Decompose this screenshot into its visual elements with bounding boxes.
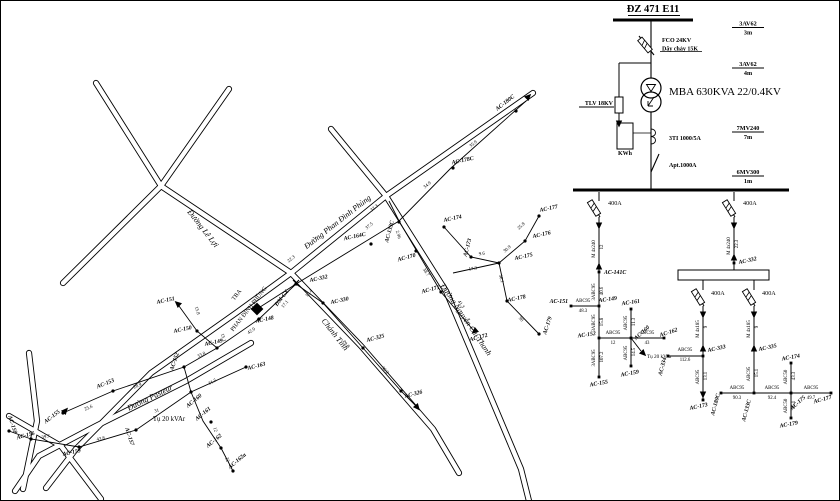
node-label: AC-334 — [658, 357, 669, 377]
pole-node — [451, 166, 454, 169]
equipment-label: KWh — [618, 151, 633, 157]
length-label: 22.3 — [287, 255, 297, 264]
junction-node — [598, 305, 601, 308]
length-label: 9.6 — [479, 252, 486, 258]
node-label: AC-150 — [172, 325, 192, 335]
arrow-icon — [596, 223, 602, 230]
length-label: 15.8 — [193, 306, 201, 316]
pole-node — [219, 446, 222, 449]
arrow-icon — [751, 312, 757, 319]
length-label: M 4x185 — [747, 320, 752, 338]
cable-type-label: 7MV240 — [737, 125, 760, 132]
length-label: 33.8 — [197, 351, 207, 359]
junction-node — [630, 308, 633, 311]
length-label: 15.8 — [600, 317, 605, 326]
node-label: AC-335 — [757, 343, 777, 353]
length-label: 25.8 — [517, 222, 527, 232]
pole-node — [61, 411, 64, 414]
node-label: AC-170 — [396, 253, 416, 264]
rating-label: 400A — [608, 200, 622, 207]
length-label: ABC95 — [624, 315, 629, 330]
node-label: AC-160 — [185, 393, 204, 410]
pole-node — [442, 225, 445, 228]
cable-length-label: 7m — [744, 134, 753, 141]
node-label: AC-174 — [780, 353, 800, 362]
pole-node — [523, 239, 526, 242]
node-label: AC-157 — [123, 426, 135, 447]
symbol-path — [647, 85, 656, 92]
pole-node — [209, 420, 212, 423]
capacitor-label: Tụ 20 kVAr — [647, 354, 672, 360]
node-label: AC-179 — [778, 420, 798, 429]
street-name-label: Đường Phan Đình Phùng — [302, 193, 373, 251]
equipment-label: Apt.1000A — [669, 163, 697, 169]
length-label: ABC95 — [576, 299, 591, 304]
node-label: AC-155 — [588, 379, 608, 388]
street-casing — [96, 83, 459, 473]
length-label: 13.1 — [704, 371, 709, 380]
rating-label: 400A — [743, 200, 757, 207]
junction-node — [630, 365, 633, 368]
length-label: 12 — [611, 341, 616, 346]
rating-label: 400A — [711, 290, 725, 297]
junction-node — [790, 362, 793, 365]
node-label: AC-177 — [812, 394, 833, 405]
length-label: 34.9 — [423, 181, 433, 190]
cable-length-label: 1m — [744, 178, 753, 185]
length-label: 43 — [645, 341, 650, 346]
node-label: AC-152 — [576, 331, 596, 340]
diagram-canvas: 3AV623m3AV624m7MV2407m6MV3001mĐZ 471 E11… — [1, 1, 840, 501]
fuse-icon — [587, 200, 600, 217]
length-label: 37.5 — [365, 222, 375, 231]
length-label: 3ABC95 — [592, 283, 597, 301]
pole-node — [195, 329, 198, 332]
node-label: AC-162 — [658, 327, 678, 339]
cable-type-label: 3AV62 — [739, 21, 756, 28]
arrow-icon — [700, 392, 706, 399]
node-label: AC-151 — [155, 296, 175, 306]
length-label: M 4x240 — [727, 237, 732, 255]
length-label: 12 — [211, 427, 217, 434]
length-label: 107.2 — [600, 351, 605, 362]
pole-node — [134, 428, 137, 431]
length-label: 92.4 — [768, 396, 777, 401]
pole-node — [514, 109, 517, 112]
length-label: 43.3 — [792, 371, 797, 380]
junction-node — [790, 392, 793, 395]
cable-length-label: 3m — [744, 30, 753, 37]
node-label: AC-171 — [420, 285, 440, 296]
pole-node — [469, 255, 472, 258]
schematic-box — [615, 97, 623, 113]
fuse-icon — [638, 37, 653, 53]
junction-node — [790, 417, 793, 420]
pole-node — [361, 346, 364, 349]
pole-node — [369, 242, 372, 245]
length-label: 15.1 — [755, 368, 760, 377]
node-label: AC-174 — [442, 214, 462, 224]
node-label: AC-153 — [95, 378, 115, 391]
length-label: ABC95 — [765, 386, 780, 391]
junction-node — [753, 392, 756, 395]
junction-node — [570, 305, 573, 308]
pole-node — [215, 346, 218, 349]
fuse-icon — [742, 289, 755, 306]
junction-node — [598, 376, 601, 379]
node-label: AC-178 — [506, 294, 526, 304]
distribution-network-diagram: 3AV623m3AV624m7MV2407m6MV3001mĐZ 471 E11… — [0, 0, 840, 501]
street-casing — [63, 89, 229, 283]
junction-node — [598, 337, 601, 340]
cable-type-label: 6MV300 — [737, 169, 760, 176]
schematic-box — [617, 123, 633, 149]
node-label: AC-173 — [463, 238, 474, 258]
pole-node — [399, 389, 402, 392]
node-label: AC-325 — [365, 333, 385, 344]
junction-node — [702, 355, 705, 358]
node-label: AC-332 — [737, 256, 757, 266]
junction-node — [720, 392, 723, 395]
pole-node — [321, 301, 324, 304]
node-label: AC-179 — [542, 316, 554, 336]
node-label: AC-163 — [246, 361, 266, 372]
substation-name-label: TBA — [231, 288, 244, 302]
length-label: 14.5 — [632, 347, 637, 356]
node-label: AC-164C — [342, 232, 366, 243]
node-label: AC-161 — [620, 299, 640, 308]
pole-node — [537, 214, 540, 217]
cable-type-label: 3AV62 — [739, 61, 756, 68]
junction-node — [598, 271, 601, 274]
node-label: AC-330 — [329, 296, 349, 306]
arrow-icon — [700, 312, 706, 319]
node-label: AC-149 — [597, 296, 617, 305]
node-label: AC-152 — [169, 352, 181, 372]
length-label: 11.3 — [632, 317, 637, 326]
node-label: AC-175 — [513, 252, 533, 262]
transformer-label: MBA 630KVA 22/0.4KV — [669, 86, 781, 98]
pole-node — [182, 365, 185, 368]
schematic-box — [678, 270, 769, 280]
junction-node — [733, 262, 736, 265]
diagram-title: ĐZ 471 E11 — [627, 4, 680, 15]
equipment-label: Dây chảy 15K — [662, 47, 698, 53]
length-label: ABC95 — [747, 366, 752, 381]
length-label: 3ABC95 — [592, 314, 597, 332]
equipment-label: 3TI 1000/5A — [669, 136, 702, 142]
length-label: 90.3 — [733, 396, 742, 401]
street — [96, 83, 459, 473]
node-label: AC-133C — [741, 399, 753, 423]
fuse-icon — [691, 289, 704, 306]
cable-length-label: 4m — [744, 70, 753, 77]
pole-node — [414, 249, 417, 252]
length-label: M 4x185 — [696, 320, 701, 338]
length-label: 42.9 — [247, 327, 257, 336]
equipment-label: FCO 24KV — [662, 38, 692, 44]
node-label: AC-141C — [603, 270, 626, 276]
junction-node — [702, 399, 705, 402]
schematic-line — [651, 154, 659, 172]
length-label: 31.5 — [208, 378, 218, 387]
capacitor-label: Tụ 20 kVAr — [153, 416, 186, 423]
rating-label: 400A — [762, 290, 776, 297]
node-label: AC-159 — [619, 369, 639, 378]
node-label: AC-180C — [710, 393, 722, 417]
arrow-icon — [751, 345, 757, 352]
length-label: ABC95 — [730, 386, 745, 391]
node-label: AC-326 — [403, 389, 423, 400]
length-label: ABC95 — [678, 348, 693, 353]
equipment-label: TLV 18KV — [585, 101, 614, 107]
length-label: ABC95 — [696, 369, 701, 384]
fuse-icon — [722, 200, 735, 217]
length-label: 9 — [704, 325, 709, 328]
node-label: AC-176 — [531, 230, 551, 240]
length-label: 2.96 — [394, 230, 402, 240]
arrow-icon — [731, 223, 737, 230]
pole-node — [497, 261, 500, 264]
node-label: AC-173 — [688, 402, 708, 412]
length-label: ABC95 — [804, 386, 819, 391]
pole-node — [111, 389, 114, 392]
length-label: ABC95 — [624, 345, 629, 360]
length-label: 9 — [755, 325, 760, 328]
pole-node — [537, 332, 540, 335]
length-label: 40.6 — [600, 286, 605, 295]
length-label: 22.3 — [735, 239, 740, 248]
symbol-path — [651, 129, 656, 144]
length-label: 25.6 — [84, 404, 94, 412]
node-label: AC-155 — [43, 409, 62, 426]
junction-node — [630, 337, 633, 340]
length-label: 3ABC95 — [592, 349, 597, 367]
pole-node — [397, 220, 400, 223]
length-label: ABC50 — [784, 369, 789, 384]
node-label: AC-151 — [549, 299, 568, 305]
node-label: AC-177 — [538, 204, 559, 214]
arrow-icon — [596, 263, 602, 270]
node-label: AC-332 — [308, 274, 328, 284]
length-label: 17.3 — [468, 266, 478, 272]
length-label: 43.8 — [96, 436, 106, 443]
length-label: M 4x240 — [592, 240, 597, 258]
node-label: AC-148 — [254, 315, 274, 325]
length-label: 12 — [600, 244, 605, 249]
length-label: 48.3 — [579, 309, 588, 314]
street — [63, 89, 229, 283]
pole-node — [7, 429, 10, 432]
pole-node — [189, 390, 192, 393]
node-label: AC-162a — [227, 452, 248, 471]
node-label: AC-178C — [450, 156, 474, 167]
length-label: ABC95 — [606, 331, 621, 336]
arrow-icon — [700, 345, 706, 352]
length-label: ABC50 — [784, 398, 789, 413]
length-label: 112.6 — [680, 358, 691, 363]
node-label: AC-333 — [706, 344, 726, 354]
